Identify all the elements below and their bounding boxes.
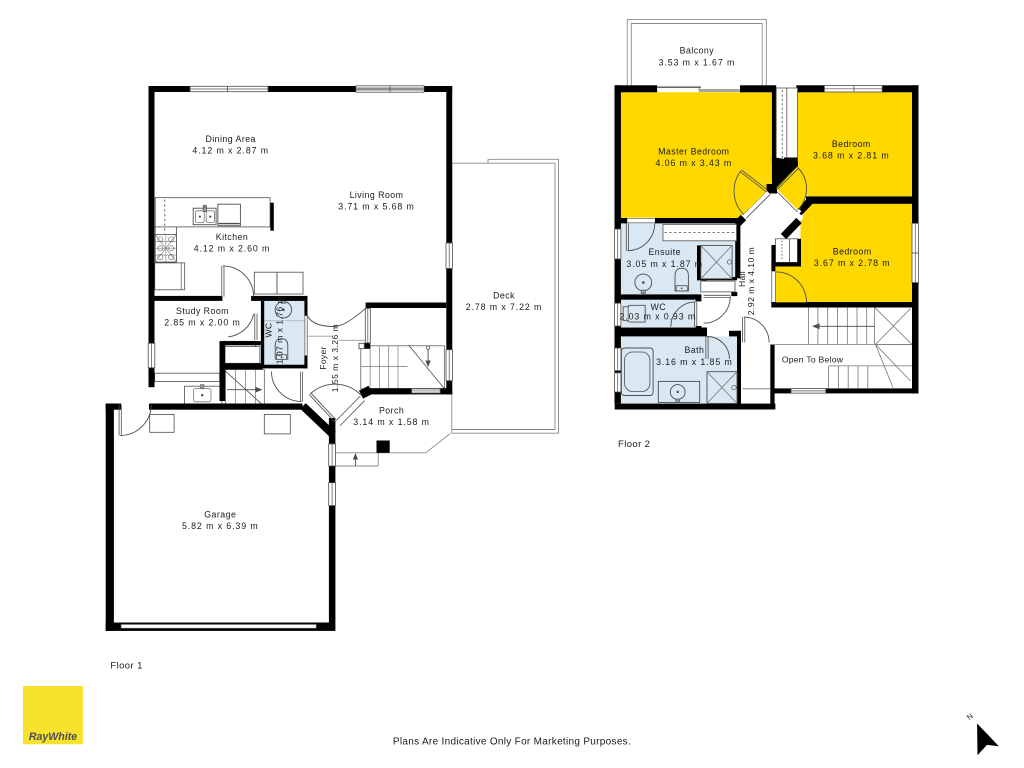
svg-text:2.85 m x 2.00 m: 2.85 m x 2.00 m (164, 318, 241, 328)
svg-text:Plans Are Indicative Only For: Plans Are Indicative Only For Marketing … (393, 737, 631, 748)
svg-text:WC: WC (264, 323, 274, 338)
svg-text:Garage: Garage (204, 509, 236, 519)
svg-text:Master Bedroom: Master Bedroom (658, 146, 729, 156)
svg-text:2.03 m x 0.93 m: 2.03 m x 0.93 m (620, 311, 697, 321)
svg-text:Foyer: Foyer (318, 346, 328, 369)
svg-text:1.55 m x 3.26 m: 1.55 m x 3.26 m (330, 324, 340, 392)
svg-text:3.14 m x 1.58 m: 3.14 m x 1.58 m (353, 417, 430, 427)
svg-text:Floor 2: Floor 2 (618, 439, 650, 450)
svg-text:Study Room: Study Room (176, 306, 229, 316)
svg-text:Kitchen: Kitchen (216, 232, 249, 242)
svg-text:RayWhite: RayWhite (29, 731, 77, 743)
svg-text:3.68 m x 2.81 m: 3.68 m x 2.81 m (813, 151, 890, 161)
svg-text:Porch: Porch (379, 405, 404, 415)
svg-text:4.12 m x 2.60 m: 4.12 m x 2.60 m (194, 244, 271, 254)
svg-text:3.53 m x 1.67 m: 3.53 m x 1.67 m (659, 57, 736, 67)
svg-text:5.82 m x 6.39 m: 5.82 m x 6.39 m (182, 521, 259, 531)
svg-text:4.06 m x 3.43 m: 4.06 m x 3.43 m (656, 158, 733, 168)
svg-text:Open To Below: Open To Below (782, 355, 844, 365)
svg-text:Ensuite: Ensuite (648, 247, 681, 257)
svg-text:3.16 m x 1.85 m: 3.16 m x 1.85 m (656, 357, 733, 367)
svg-text:Living Room: Living Room (350, 190, 404, 200)
svg-text:2.78 m x 7.22 m: 2.78 m x 7.22 m (466, 302, 543, 312)
svg-text:Bedroom: Bedroom (833, 246, 872, 256)
svg-text:Balcony: Balcony (680, 46, 715, 56)
svg-text:Bath: Bath (684, 345, 704, 355)
svg-text:3.67 m x 2.78 m: 3.67 m x 2.78 m (814, 258, 891, 268)
svg-text:3.05 m x 1.87 m: 3.05 m x 1.87 m (626, 259, 703, 269)
svg-text:2.92 m x 4.10 m: 2.92 m x 4.10 m (746, 247, 756, 315)
svg-text:Floor 1: Floor 1 (110, 660, 142, 671)
svg-text:1.07 m x 1.76 m: 1.07 m x 1.76 m (275, 296, 285, 364)
svg-text:3.71 m x 5.68 m: 3.71 m x 5.68 m (338, 202, 415, 212)
svg-text:Dining Area: Dining Area (205, 134, 255, 144)
svg-text:WC: WC (651, 302, 667, 312)
svg-text:Deck: Deck (493, 291, 515, 301)
svg-text:Bedroom: Bedroom (832, 139, 871, 149)
svg-text:4.12 m x 2.87 m: 4.12 m x 2.87 m (192, 146, 269, 156)
